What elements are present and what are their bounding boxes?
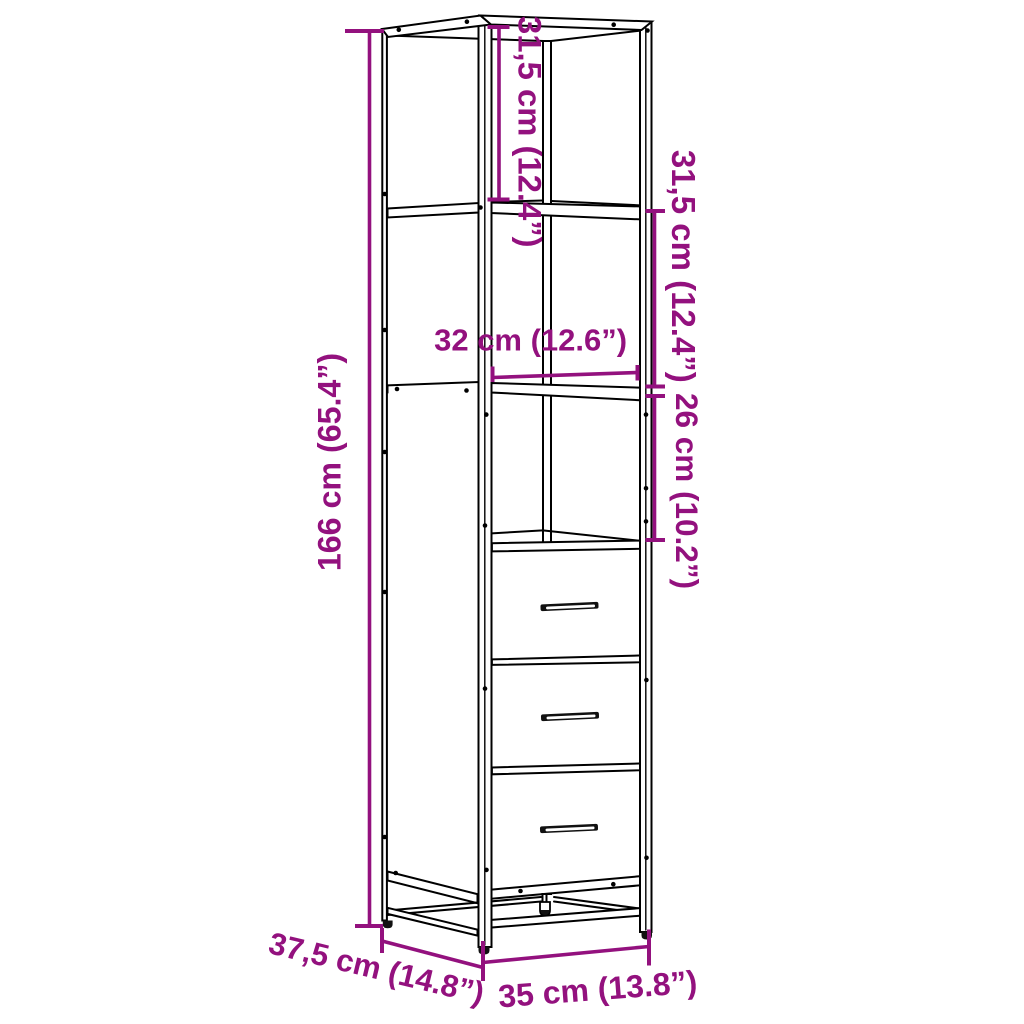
- svg-text:32 cm (12.6”): 32 cm (12.6”): [434, 323, 627, 358]
- svg-text:166 cm (65.4”): 166 cm (65.4”): [312, 353, 348, 571]
- svg-text:31,5 cm (12.4”): 31,5 cm (12.4”): [512, 16, 549, 248]
- svg-text:26 cm (10.2”): 26 cm (10.2”): [669, 393, 705, 589]
- svg-text:31,5 cm (12.4”): 31,5 cm (12.4”): [665, 150, 702, 383]
